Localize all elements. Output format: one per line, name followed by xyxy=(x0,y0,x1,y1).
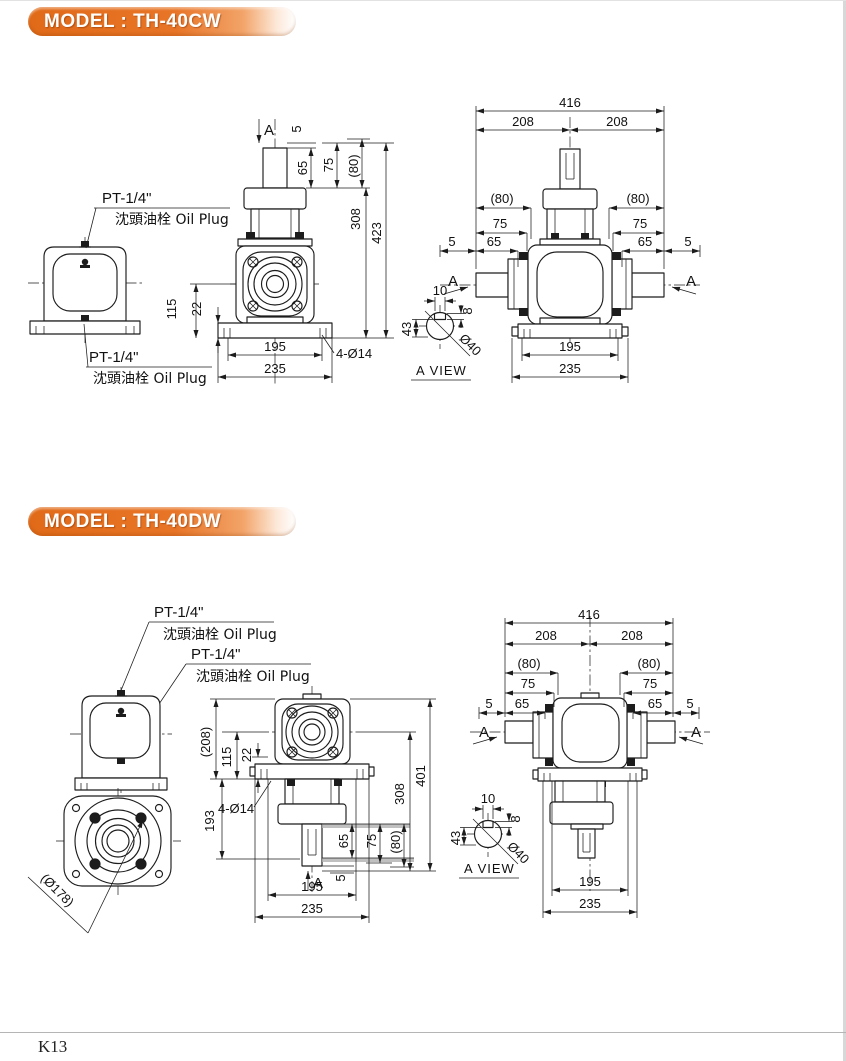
dim-5-right: 5 xyxy=(686,696,693,711)
dim-80: (80) xyxy=(346,154,361,177)
side-view xyxy=(440,117,700,343)
flange-view: (Ø178) xyxy=(28,788,181,933)
dim-208-right: 208 xyxy=(606,114,628,129)
callout-plug-bottom: 沈頭油栓 Oil Plug xyxy=(93,371,207,387)
dim-65-right: 65 xyxy=(648,696,662,711)
dim-195: 195 xyxy=(579,874,601,889)
dim-195: 195 xyxy=(559,339,581,354)
section-arrow-right: A xyxy=(691,724,701,741)
dim-5: 5 xyxy=(289,125,304,132)
dim-208-left: 208 xyxy=(535,628,557,643)
callout-plug-top: 沈頭油栓 Oil Plug xyxy=(115,212,229,228)
dim-401: 401 xyxy=(413,765,428,787)
drawing-th40dw: PT-1/4" 沈頭油栓 Oil Plug PT-1/4" 沈頭油栓 Oil P… xyxy=(0,561,846,1031)
page-number: K13 xyxy=(38,1037,67,1057)
section-arrow-left: A xyxy=(479,724,489,741)
dim-235: 235 xyxy=(301,901,323,916)
a-view-detail: 10 8 43 Ø40 A VIEW xyxy=(448,791,532,878)
dim-5-left: 5 xyxy=(485,696,492,711)
callout-thread-top: PT-1/4" xyxy=(102,190,152,207)
model-header-th40cw: MODEL : TH-40CW xyxy=(28,7,296,36)
section-arrow-right: A xyxy=(686,273,696,290)
dim-80-left: (80) xyxy=(490,191,513,206)
dim-75-left: 75 xyxy=(493,216,507,231)
dim-75: 75 xyxy=(364,834,379,848)
dim-65-left: 65 xyxy=(487,234,501,249)
dim-75-left: 75 xyxy=(521,676,535,691)
dim-75-right: 75 xyxy=(643,676,657,691)
a-view-detail: 10 8 43 Ø40 A VIEW xyxy=(399,283,484,380)
dim-308: 308 xyxy=(392,783,407,805)
callout-thread-bottom: PT-1/4" xyxy=(89,349,139,366)
dim-235: 235 xyxy=(579,896,601,911)
aview-dim-8: 8 xyxy=(508,815,523,822)
dim-80-right: (80) xyxy=(626,191,649,206)
dim-195: 195 xyxy=(264,339,286,354)
dim-80: (80) xyxy=(388,830,403,853)
dim-65-right: 65 xyxy=(638,234,652,249)
dim-416: 416 xyxy=(578,607,600,622)
dim-208-right: 208 xyxy=(621,628,643,643)
dim-holes: 4-Ø14 xyxy=(336,346,372,361)
model-header-th40dw: MODEL : TH-40DW xyxy=(28,507,296,536)
callout-plug-top: 沈頭油栓 Oil Plug xyxy=(163,627,277,643)
catalog-page: MODEL : TH-40CW PT-1/4" 沈頭油栓 Oil Plug PT… xyxy=(0,0,846,1061)
callout-plug-bottom: 沈頭油栓 Oil Plug xyxy=(196,669,310,685)
dim-22: 22 xyxy=(239,748,254,762)
dim-115: 115 xyxy=(164,299,179,320)
dim-75: 75 xyxy=(321,158,336,172)
model-title: MODEL : TH-40CW xyxy=(44,11,221,32)
dim-5-right: 5 xyxy=(684,234,691,249)
dim-80-right: (80) xyxy=(637,656,660,671)
dim-193: 193 xyxy=(202,810,217,832)
aview-dim-43: 43 xyxy=(399,322,414,336)
front-view xyxy=(250,686,414,893)
dim-65-left: 65 xyxy=(515,696,529,711)
callout-thread-bottom: PT-1/4" xyxy=(191,646,241,663)
dim-208-left: 208 xyxy=(512,114,534,129)
side-elevation-view xyxy=(70,687,172,793)
dim-22: 22 xyxy=(189,302,204,316)
aview-dim-8: 8 xyxy=(460,307,475,314)
aview-dim-43: 43 xyxy=(448,831,463,845)
dim-80-left: (80) xyxy=(517,656,540,671)
model-title: MODEL : TH-40DW xyxy=(44,511,221,532)
dim-holes: 4-Ø14 xyxy=(218,801,254,816)
aview-label: A VIEW xyxy=(416,363,467,378)
dim-65: 65 xyxy=(295,161,310,175)
aview-label: A VIEW xyxy=(464,861,515,876)
side-elevation-view xyxy=(28,237,142,343)
callout-thread-top: PT-1/4" xyxy=(154,604,204,621)
dim-115: 115 xyxy=(219,747,234,768)
dim-5-left: 5 xyxy=(448,234,455,249)
dim-195: 195 xyxy=(301,879,323,894)
dim-416: 416 xyxy=(559,95,581,110)
dim-75-right: 75 xyxy=(633,216,647,231)
drawing-th40cw: PT-1/4" 沈頭油栓 Oil Plug PT-1/4" 沈頭油栓 Oil P… xyxy=(0,81,846,411)
dim-208: (208) xyxy=(198,727,213,757)
aview-dim-10: 10 xyxy=(433,283,447,298)
aview-dim-10: 10 xyxy=(481,791,495,806)
dim-5: 5 xyxy=(333,874,348,881)
dim-235: 235 xyxy=(559,361,581,376)
dim-65: 65 xyxy=(336,834,351,848)
dim-308: 308 xyxy=(348,208,363,230)
section-arrow-label: A xyxy=(264,122,274,139)
dim-423: 423 xyxy=(369,222,384,244)
section-arrow-left: A xyxy=(448,273,458,290)
aview-dim-40: Ø40 xyxy=(456,331,484,359)
footer-divider xyxy=(0,1032,846,1033)
dim-235: 235 xyxy=(264,361,286,376)
